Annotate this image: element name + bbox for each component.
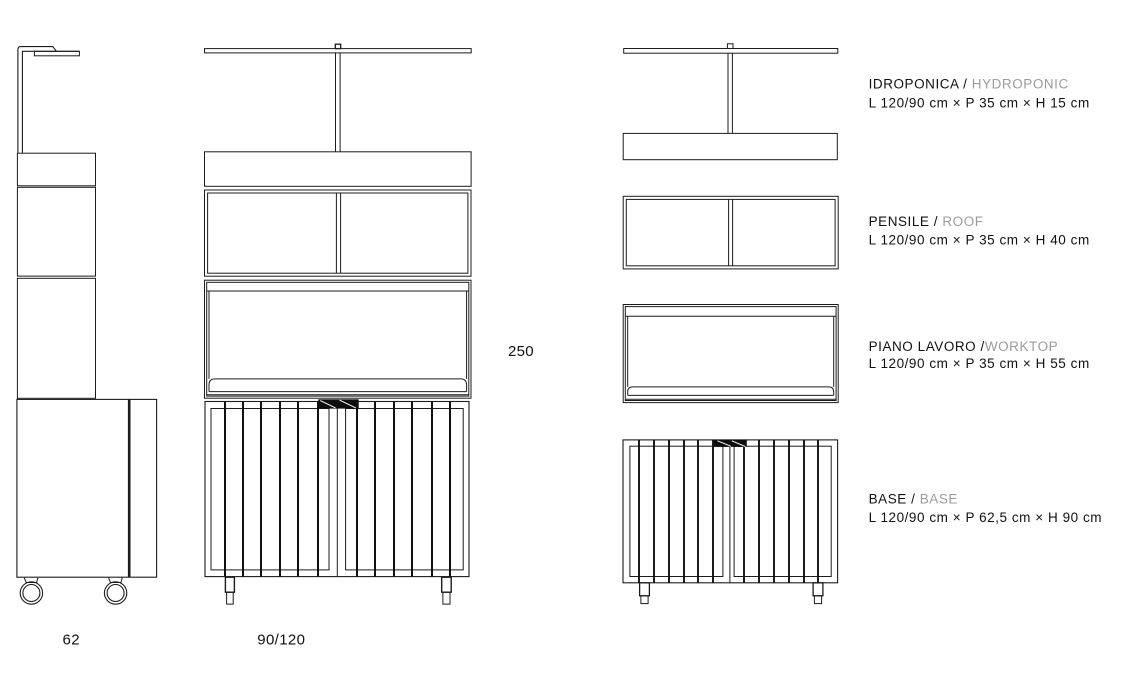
svg-text:L 120/90 cm × P 35 cm × H 55 c: L 120/90 cm × P 35 cm × H 55 cm [869, 356, 1090, 371]
svg-text:L 120/90 cm × P 35 cm × H 15 c: L 120/90 cm × P 35 cm × H 15 cm [869, 95, 1090, 110]
svg-text:PIANO LAVORO /WORKTOP: PIANO LAVORO /WORKTOP [869, 339, 1059, 354]
svg-text:PENSILE / ROOF: PENSILE / ROOF [869, 214, 984, 229]
svg-text:90/120: 90/120 [257, 631, 305, 648]
svg-text:BASE / BASE: BASE / BASE [869, 492, 958, 507]
svg-text:62: 62 [63, 631, 81, 648]
svg-text:L 120/90 cm × P 35 cm × H 40 c: L 120/90 cm × P 35 cm × H 40 cm [869, 232, 1090, 247]
svg-text:250: 250 [508, 343, 534, 360]
svg-text:IDROPONICA / HYDROPONIC: IDROPONICA / HYDROPONIC [869, 77, 1069, 92]
svg-text:L 120/90 cm × P 62,5 cm × H 90: L 120/90 cm × P 62,5 cm × H 90 cm [869, 510, 1103, 525]
